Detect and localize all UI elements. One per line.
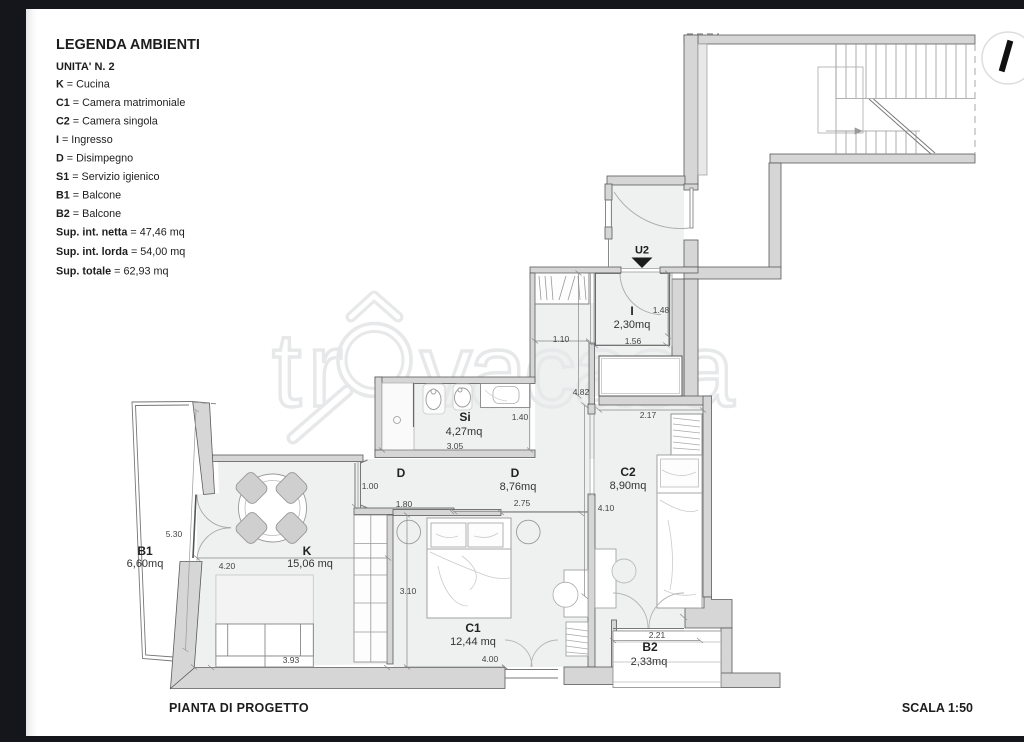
svg-text:1.40: 1.40 bbox=[512, 412, 529, 422]
svg-text:K = Cucina: K = Cucina bbox=[56, 79, 110, 91]
svg-text:D: D bbox=[511, 466, 520, 480]
svg-text:5.30: 5.30 bbox=[166, 529, 183, 539]
svg-text:Sup. totale = 62,93 mq: Sup. totale = 62,93 mq bbox=[56, 266, 169, 278]
svg-text:C1 = Camera matrimoniale: C1 = Camera matrimoniale bbox=[56, 97, 185, 109]
svg-text:B1 = Balcone: B1 = Balcone bbox=[56, 190, 121, 202]
svg-text:1.56: 1.56 bbox=[625, 336, 642, 346]
svg-text:Sup. int. lorda = 54,00 mq: Sup. int. lorda = 54,00 mq bbox=[56, 246, 185, 258]
svg-text:SCALA 1:50: SCALA 1:50 bbox=[902, 701, 973, 715]
svg-text:S1 = Servizio igienico: S1 = Servizio igienico bbox=[56, 171, 160, 183]
svg-text:B2: B2 bbox=[642, 640, 658, 654]
svg-text:4.20: 4.20 bbox=[219, 561, 236, 571]
svg-text:1.10: 1.10 bbox=[553, 334, 570, 344]
svg-text:I = Ingresso: I = Ingresso bbox=[56, 134, 113, 146]
svg-text:2.75: 2.75 bbox=[514, 498, 531, 508]
svg-text:B1: B1 bbox=[137, 544, 153, 558]
svg-text:D = Disimpegno: D = Disimpegno bbox=[56, 153, 133, 165]
svg-text:Si: Si bbox=[459, 410, 470, 424]
svg-text:2.21: 2.21 bbox=[649, 630, 666, 640]
svg-text:4.82: 4.82 bbox=[573, 387, 590, 397]
svg-text:I: I bbox=[630, 304, 633, 318]
svg-text:6,60mq: 6,60mq bbox=[127, 558, 164, 570]
svg-text:3.10: 3.10 bbox=[400, 586, 417, 596]
svg-text:C2 = Camera singola: C2 = Camera singola bbox=[56, 116, 158, 128]
svg-text:LEGENDA AMBIENTI: LEGENDA AMBIENTI bbox=[56, 37, 200, 53]
svg-text:2.17: 2.17 bbox=[640, 410, 657, 420]
svg-text:tr: tr bbox=[272, 311, 349, 429]
svg-text:4.00: 4.00 bbox=[482, 654, 499, 664]
svg-text:UNITA' N. 2: UNITA' N. 2 bbox=[56, 61, 115, 73]
svg-text:12,44 mq: 12,44 mq bbox=[450, 636, 496, 648]
svg-text:D: D bbox=[397, 466, 406, 480]
svg-text:1.80: 1.80 bbox=[396, 499, 413, 509]
svg-text:3.93: 3.93 bbox=[283, 655, 300, 665]
svg-text:8,76mq: 8,76mq bbox=[500, 481, 537, 493]
svg-text:K: K bbox=[303, 544, 312, 558]
svg-text:1.48: 1.48 bbox=[653, 305, 670, 315]
svg-text:15,06 mq: 15,06 mq bbox=[287, 558, 333, 570]
svg-text:B2 = Balcone: B2 = Balcone bbox=[56, 208, 121, 220]
svg-text:C1: C1 bbox=[465, 621, 481, 635]
svg-text:Sup. int. netta = 47,46 mq: Sup. int. netta = 47,46 mq bbox=[56, 227, 185, 239]
svg-text:U2: U2 bbox=[635, 245, 649, 257]
svg-text:8,90mq: 8,90mq bbox=[610, 480, 647, 492]
svg-text:4,27mq: 4,27mq bbox=[446, 426, 483, 438]
svg-text:4.10: 4.10 bbox=[598, 503, 615, 513]
svg-text:C2: C2 bbox=[620, 465, 636, 479]
svg-text:1.00: 1.00 bbox=[362, 481, 379, 491]
svg-text:PIANTA DI PROGETTO: PIANTA DI PROGETTO bbox=[169, 701, 309, 715]
svg-text:3.05: 3.05 bbox=[447, 441, 464, 451]
svg-text:2,30mq: 2,30mq bbox=[614, 319, 651, 331]
svg-text:2,33mq: 2,33mq bbox=[631, 656, 668, 668]
